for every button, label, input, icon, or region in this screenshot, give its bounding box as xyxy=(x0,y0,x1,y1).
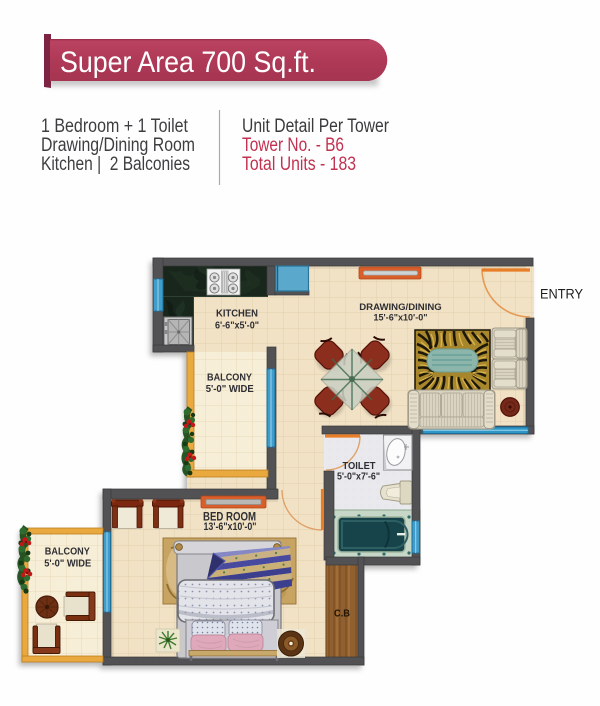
svg-text:Drawing/Dining Room: Drawing/Dining Room xyxy=(41,135,195,156)
svg-text:Kitchen | 2 Balconies: Kitchen | 2 Balconies xyxy=(41,154,190,175)
svg-text:Unit Detail Per Tower: Unit Detail Per Tower xyxy=(242,116,390,137)
svg-text:6'-6"x5'-0": 6'-6"x5'-0" xyxy=(215,321,259,332)
svg-text:15'-6"x10'-0": 15'-6"x10'-0" xyxy=(374,313,428,324)
svg-text:1 Bedroom + 1 Toilet: 1 Bedroom + 1 Toilet xyxy=(41,116,189,137)
svg-text:ENTRY: ENTRY xyxy=(540,287,583,302)
svg-text:Total Units - 183: Total Units - 183 xyxy=(242,154,356,175)
svg-text:13'-6"x10'-0": 13'-6"x10'-0" xyxy=(204,521,257,533)
svg-text:Tower No. - B6: Tower No. - B6 xyxy=(242,135,344,156)
svg-text:BALCONY: BALCONY xyxy=(45,547,90,558)
svg-text:Super Area 700 Sq.ft.: Super Area 700 Sq.ft. xyxy=(60,46,316,79)
svg-text:5'-0" WIDE: 5'-0" WIDE xyxy=(44,559,91,570)
svg-text:C.B: C.B xyxy=(334,609,350,620)
svg-text:5'-0"x7'-6": 5'-0"x7'-6" xyxy=(337,472,380,483)
svg-text:DRAWING/DINING: DRAWING/DINING xyxy=(359,302,442,313)
svg-text:KITCHEN: KITCHEN xyxy=(216,309,258,320)
svg-text:BALCONY: BALCONY xyxy=(207,373,252,384)
svg-text:5'-0" WIDE: 5'-0" WIDE xyxy=(206,384,254,395)
svg-text:TOILET: TOILET xyxy=(343,461,377,472)
